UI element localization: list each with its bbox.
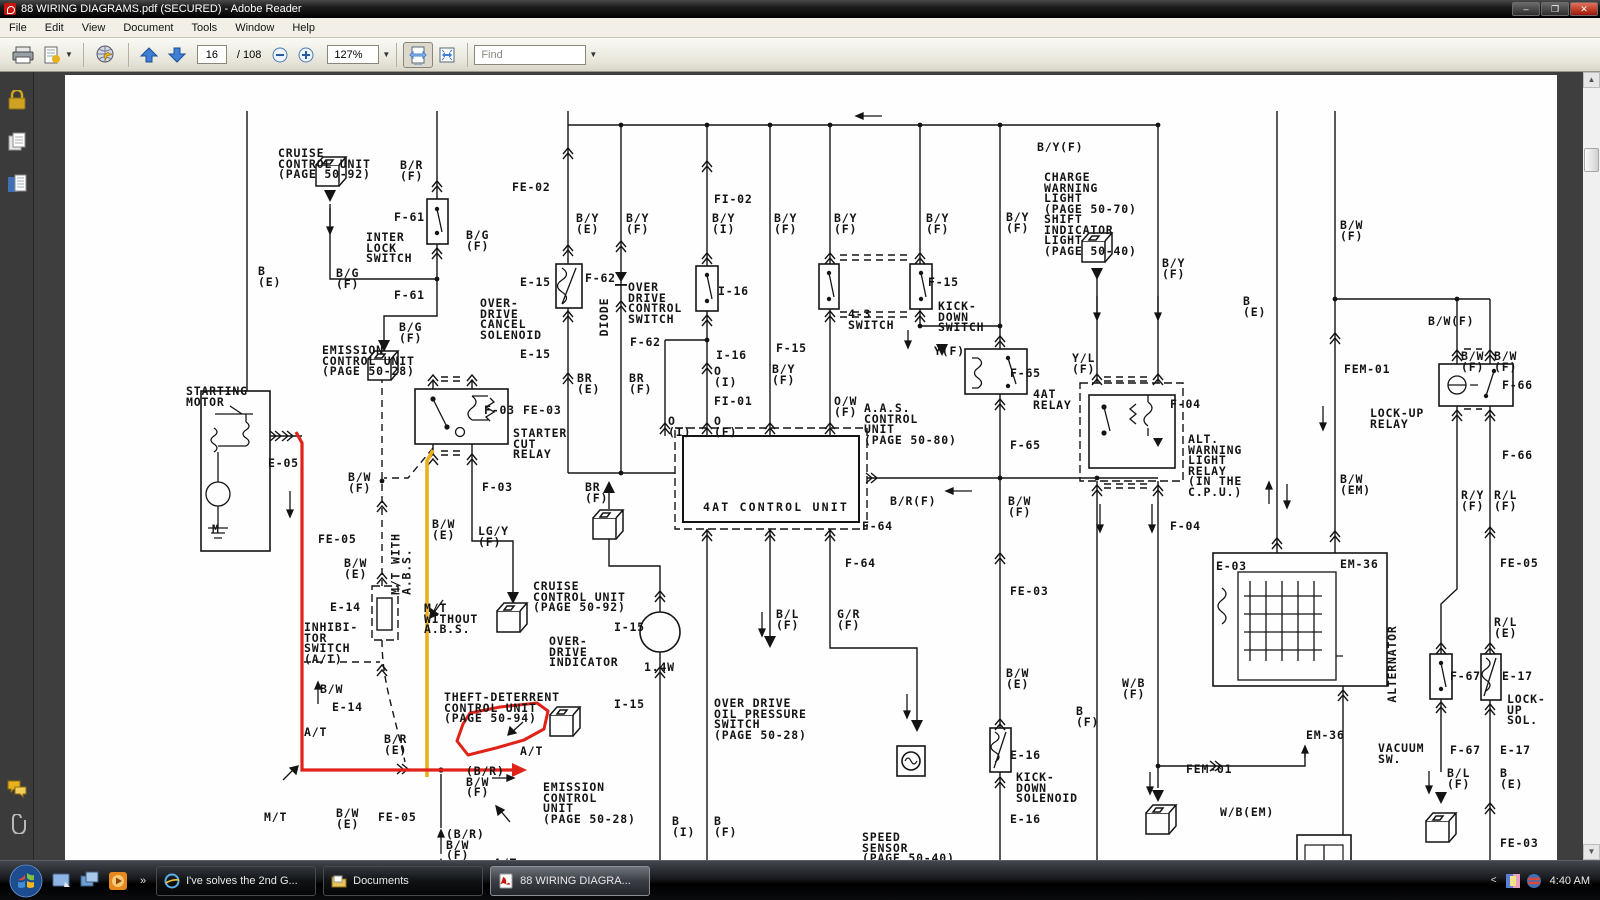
menu-edit[interactable]: Edit — [36, 20, 73, 36]
wiring-diagram-svg — [0, 72, 1600, 900]
navigation-pane — [0, 72, 34, 860]
red-circle-annotation — [457, 703, 548, 755]
toolbar-separator — [83, 43, 84, 67]
up-arrow-icon — [139, 46, 159, 64]
desktop: 88 WIRING DIAGRAMS.pdf (SECURED) - Adobe… — [0, 0, 1600, 900]
menu-bar: File Edit View Document Tools Window Hel… — [0, 18, 1600, 38]
interlock-switch-box — [427, 199, 448, 244]
wires-main — [247, 111, 1490, 896]
junction-dots — [380, 123, 1497, 773]
window-title: 88 WIRING DIAGRAMS.pdf (SECURED) - Adobe… — [21, 3, 302, 15]
menu-tools[interactable]: Tools — [183, 20, 227, 36]
kickdown-switch-box — [910, 264, 932, 309]
printer-icon — [12, 46, 34, 64]
find-input[interactable]: Find — [474, 45, 586, 65]
4at-control-unit-box — [683, 436, 859, 522]
toolbar-separator — [467, 43, 468, 67]
menu-help[interactable]: Help — [283, 20, 324, 36]
next-page-button[interactable] — [163, 42, 191, 68]
fit-width-icon — [437, 45, 457, 65]
page-number-input[interactable]: 16 — [197, 45, 227, 64]
zoom-level-select[interactable]: 127% — [327, 45, 379, 64]
maximize-button[interactable]: ❐ — [1541, 2, 1569, 16]
comments-icon[interactable] — [7, 778, 27, 798]
previous-page-button[interactable] — [135, 42, 163, 68]
network-tray-icon[interactable] — [1526, 873, 1542, 889]
control-unit-cube-icons — [316, 157, 1456, 842]
pdf-icon — [498, 873, 514, 889]
adobe-reader-icon — [4, 3, 16, 15]
folder-icon — [331, 873, 347, 889]
find-caret-icon: ▼ — [589, 50, 597, 59]
taskbar-clock: 4:40 AM — [1550, 875, 1590, 887]
zoom-caret-icon: ▼ — [382, 50, 390, 59]
window-switcher-icon[interactable] — [80, 871, 100, 891]
scroll-up-button[interactable]: ▲ — [1583, 72, 1600, 88]
lock-icon[interactable] — [7, 90, 27, 110]
down-arrow-icon — [167, 46, 187, 64]
alternator-box — [1213, 553, 1387, 686]
toolbar-separator — [396, 43, 397, 67]
messenger-tray-icon[interactable] — [1505, 873, 1521, 889]
taskbar-button-documents[interactable]: Documents — [323, 866, 483, 896]
scroll-pages-icon — [408, 45, 428, 65]
pages-icon[interactable] — [7, 132, 27, 152]
inhibitor-switch-box — [372, 586, 398, 640]
quicklaunch-overflow-chevron[interactable]: » — [140, 875, 146, 887]
tray-expand-arrow[interactable]: < — [1491, 875, 1497, 886]
taskbar-button-adobe-reader[interactable]: 88 WIRING DIAGRA... — [490, 866, 650, 896]
menu-document[interactable]: Document — [114, 20, 182, 36]
taskbar-button-label: I've solves the 2nd G... — [186, 875, 298, 887]
collaborate-button[interactable] — [90, 42, 122, 68]
minus-circle-icon — [271, 46, 289, 64]
lockup-solenoid-box — [1481, 654, 1501, 700]
taskbar-button-browser[interactable]: I've solves the 2nd G... — [156, 866, 316, 896]
overdrive-control-switch-box — [696, 266, 718, 311]
page-total-label: / 108 — [237, 49, 261, 61]
connector-chevrons — [270, 148, 1495, 814]
toolbar-separator — [128, 43, 129, 67]
overdrive-indicator-bulb — [640, 612, 680, 652]
zoom-in-button[interactable] — [293, 42, 319, 68]
document-icon — [42, 46, 62, 64]
starting-motor-box — [201, 391, 270, 551]
internet-explorer-icon — [164, 873, 180, 889]
attachments-paperclip-icon[interactable] — [7, 814, 27, 834]
show-desktop-icon[interactable] — [52, 871, 72, 891]
taskbar-button-label: 88 WIRING DIAGRA... — [520, 875, 631, 887]
save-copy-button[interactable]: ▼ — [38, 42, 77, 68]
zoom-out-button[interactable] — [267, 42, 293, 68]
taskbar: » I've solves the 2nd G... Documents 88 … — [0, 860, 1600, 900]
vertical-scrollbar[interactable]: ▲ ▼ — [1583, 72, 1600, 860]
collaborate-globe-icon — [94, 44, 118, 66]
menu-file[interactable]: File — [0, 20, 36, 36]
scrolling-mode-button[interactable] — [403, 42, 433, 68]
fit-width-button[interactable] — [433, 42, 461, 68]
start-button[interactable] — [8, 863, 44, 899]
menu-view[interactable]: View — [73, 20, 115, 36]
toolbar: ▼ 16 / 108 127% ▼ Find — [0, 38, 1600, 72]
diode-and-arrowheads — [324, 190, 1447, 870]
document-area: CRUISE CONTROL UNIT (PAGE 50-92)B/R (F)F… — [0, 72, 1600, 860]
4-3-switch-box — [819, 264, 839, 309]
media-player-icon[interactable] — [108, 871, 128, 891]
print-button[interactable] — [8, 42, 38, 68]
bookmarks-icon[interactable] — [7, 174, 27, 194]
zoom-level-value: 127% — [334, 49, 362, 61]
flow-arrows — [283, 113, 1432, 854]
scrollbar-thumb[interactable] — [1584, 148, 1599, 172]
minimize-button[interactable]: – — [1512, 2, 1540, 16]
dropdown-caret-icon: ▼ — [65, 50, 73, 59]
component-internals — [206, 209, 1496, 887]
title-bar[interactable]: 88 WIRING DIAGRAMS.pdf (SECURED) - Adobe… — [0, 0, 1600, 18]
taskbar-button-label: Documents — [353, 875, 409, 887]
f04-dashed-box — [1080, 383, 1183, 481]
vacuum-switch-box — [1430, 654, 1452, 699]
close-button[interactable]: ✕ — [1570, 2, 1598, 16]
scroll-down-button[interactable]: ▼ — [1583, 844, 1600, 860]
menu-window[interactable]: Window — [226, 20, 283, 36]
plus-circle-icon — [297, 46, 315, 64]
system-tray: < 4:40 AM — [1491, 873, 1590, 889]
